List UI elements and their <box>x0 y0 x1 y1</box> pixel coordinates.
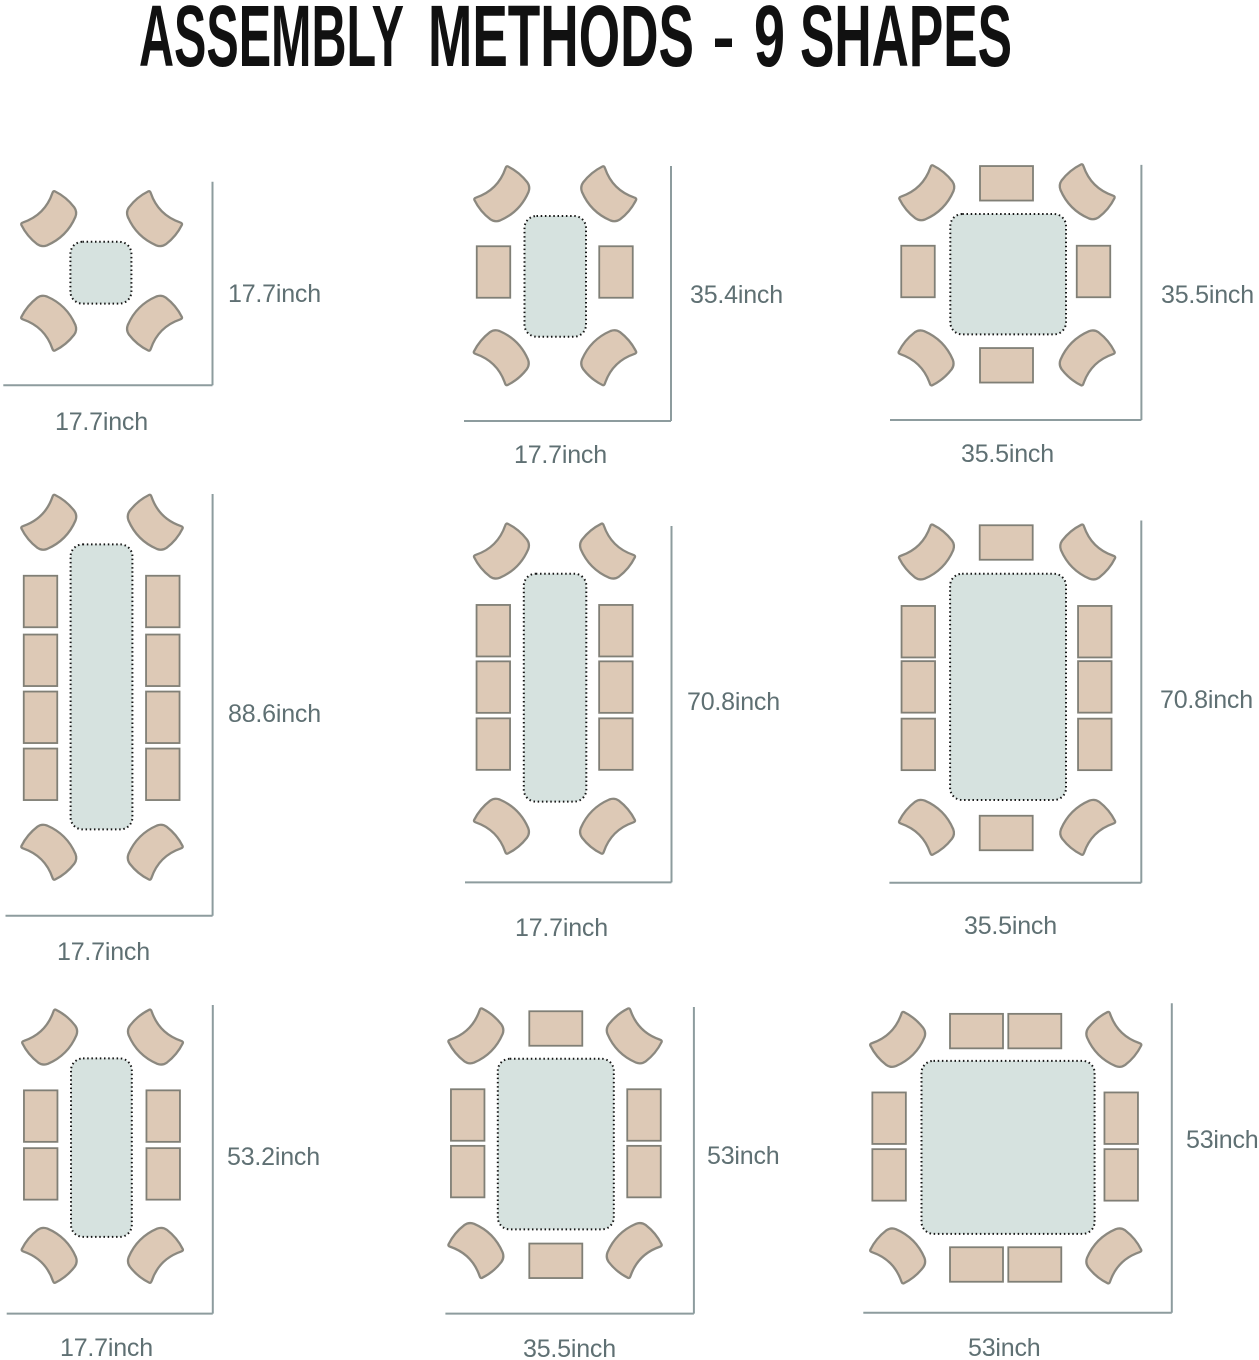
svg-text:53inch: 53inch <box>968 1334 1040 1360</box>
svg-text:35.5inch: 35.5inch <box>523 1335 616 1360</box>
svg-text:70.8inch: 70.8inch <box>1160 686 1253 714</box>
svg-text:17.7inch: 17.7inch <box>60 1334 153 1360</box>
svg-text:ASSEMBLY: ASSEMBLY <box>139 0 404 85</box>
svg-text:17.7inch: 17.7inch <box>57 938 150 966</box>
svg-text:35.5inch: 35.5inch <box>964 912 1057 940</box>
svg-text:17.7inch: 17.7inch <box>228 280 321 308</box>
svg-text:88.6inch: 88.6inch <box>228 700 321 728</box>
svg-text:17.7inch: 17.7inch <box>515 914 608 942</box>
svg-text:17.7inch: 17.7inch <box>55 408 148 436</box>
svg-text:9: 9 <box>754 0 785 85</box>
svg-text:70.8inch: 70.8inch <box>687 688 780 716</box>
svg-text:35.5inch: 35.5inch <box>961 440 1054 468</box>
svg-text:SHAPES: SHAPES <box>800 0 1012 85</box>
svg-text:53inch: 53inch <box>1186 1126 1258 1154</box>
svg-text:METHODS: METHODS <box>428 0 694 85</box>
svg-text:17.7inch: 17.7inch <box>514 441 607 469</box>
svg-text:53inch: 53inch <box>707 1142 779 1170</box>
svg-text:35.5inch: 35.5inch <box>1161 281 1254 309</box>
svg-text:35.4inch: 35.4inch <box>690 281 783 309</box>
svg-text:53.2inch: 53.2inch <box>227 1143 320 1171</box>
